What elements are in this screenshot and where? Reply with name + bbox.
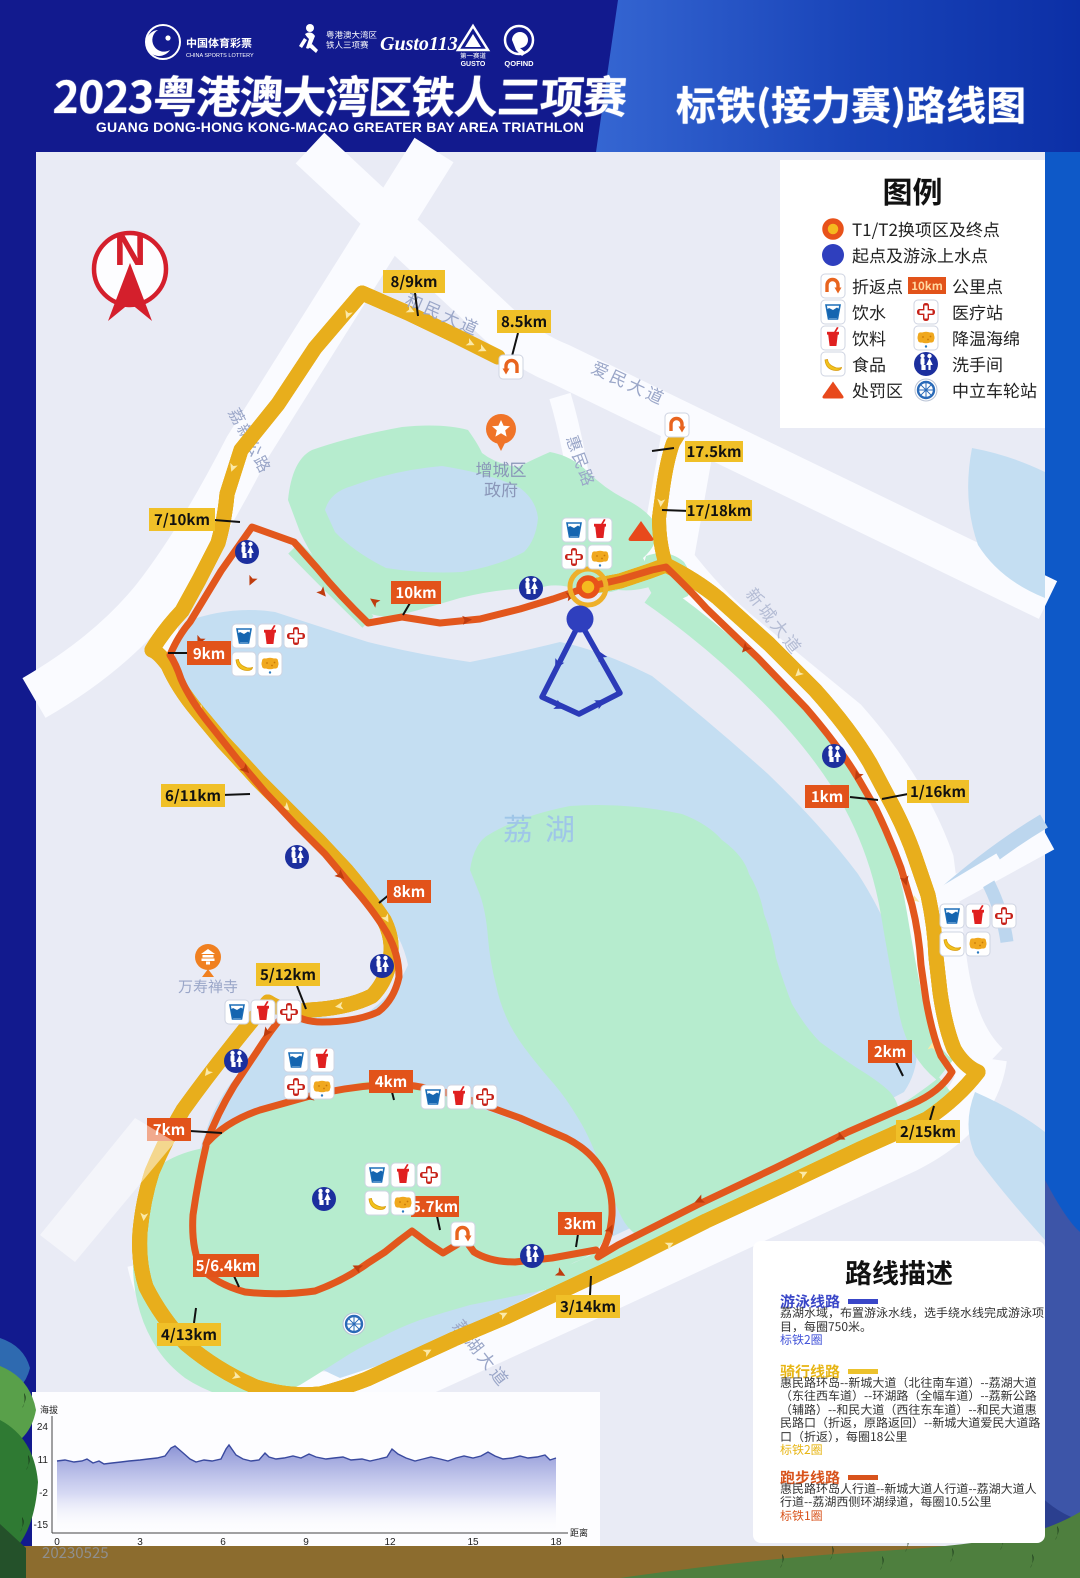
svg-text:食品: 食品 — [852, 351, 886, 376]
svg-text:医疗站: 医疗站 — [952, 299, 1003, 324]
svg-text:折返点: 折返点 — [852, 273, 903, 298]
svg-text:公里点: 公里点 — [952, 273, 1003, 298]
svg-text:10km: 10km — [911, 278, 943, 294]
svg-text:起点及游泳上水点: 起点及游泳上水点 — [852, 242, 988, 267]
svg-text:饮料: 饮料 — [852, 325, 886, 350]
svg-text:T1/T2换项区及终点: T1/T2换项区及终点 — [852, 216, 1000, 241]
svg-text:饮水: 饮水 — [852, 299, 886, 324]
svg-text:处罚区: 处罚区 — [852, 377, 903, 402]
svg-text:洗手间: 洗手间 — [952, 351, 1003, 376]
svg-text:降温海绵: 降温海绵 — [952, 325, 1020, 350]
svg-text:中立车轮站: 中立车轮站 — [952, 377, 1037, 402]
